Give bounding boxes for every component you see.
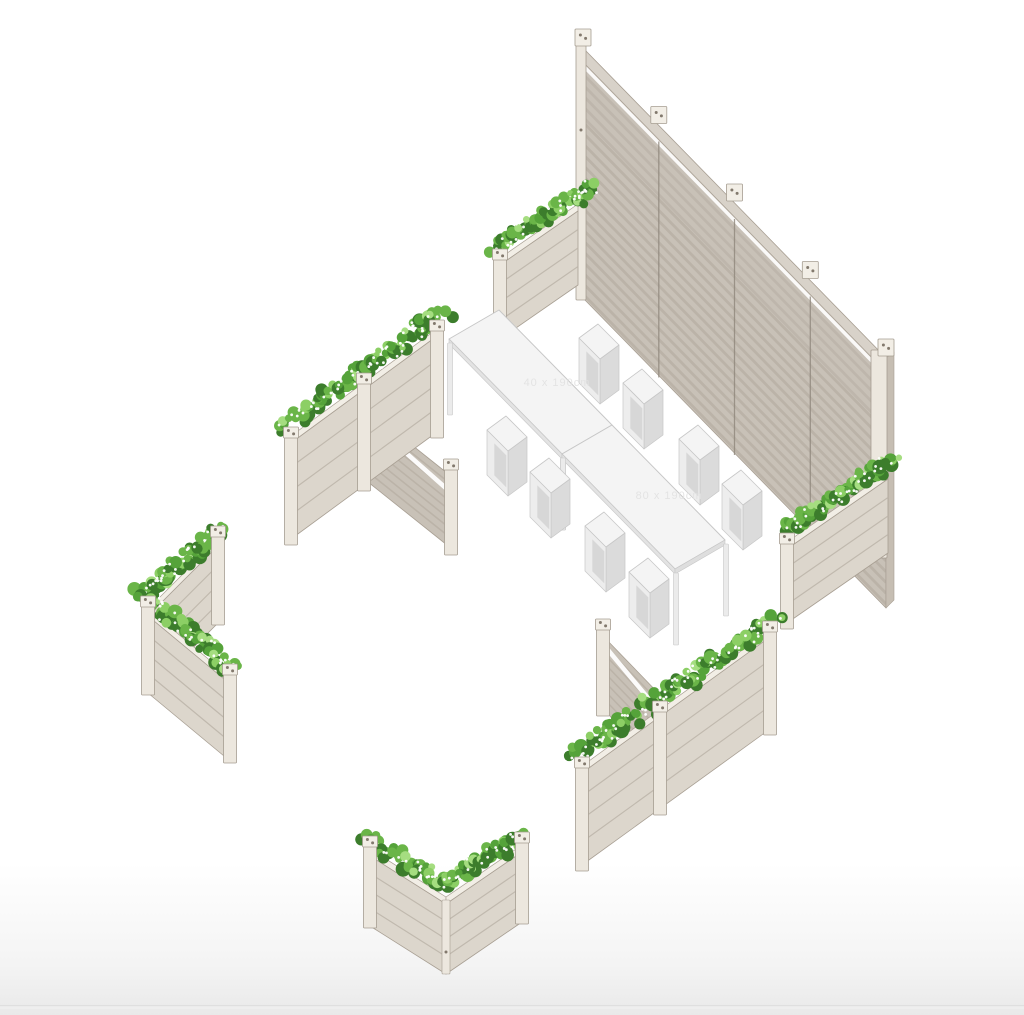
table-1-watermark: 40 x 190cm — [524, 377, 591, 389]
isometric-scene: 40 x 190cm 80 x 190cm — [0, 0, 1024, 1015]
stool-front-4[interactable] — [629, 558, 669, 638]
scene-objects — [127, 29, 902, 974]
stool-back-1[interactable] — [579, 324, 619, 404]
stool-back-2[interactable] — [623, 369, 663, 449]
stool-front-3[interactable] — [585, 512, 625, 592]
stool-back-4[interactable] — [722, 470, 762, 550]
table-2-watermark: 80 x 190cm — [636, 490, 703, 502]
planter-row-south[interactable] — [564, 609, 788, 871]
render-canvas[interactable]: 40 x 190cm 80 x 190cm — [0, 0, 1024, 1015]
corner-planter-west[interactable] — [127, 522, 241, 763]
stool-front-1[interactable] — [487, 416, 527, 496]
planter-row-west[interactable] — [274, 305, 459, 555]
corner-planter-south[interactable] — [355, 828, 529, 974]
floor-edge — [0, 1006, 1024, 1009]
